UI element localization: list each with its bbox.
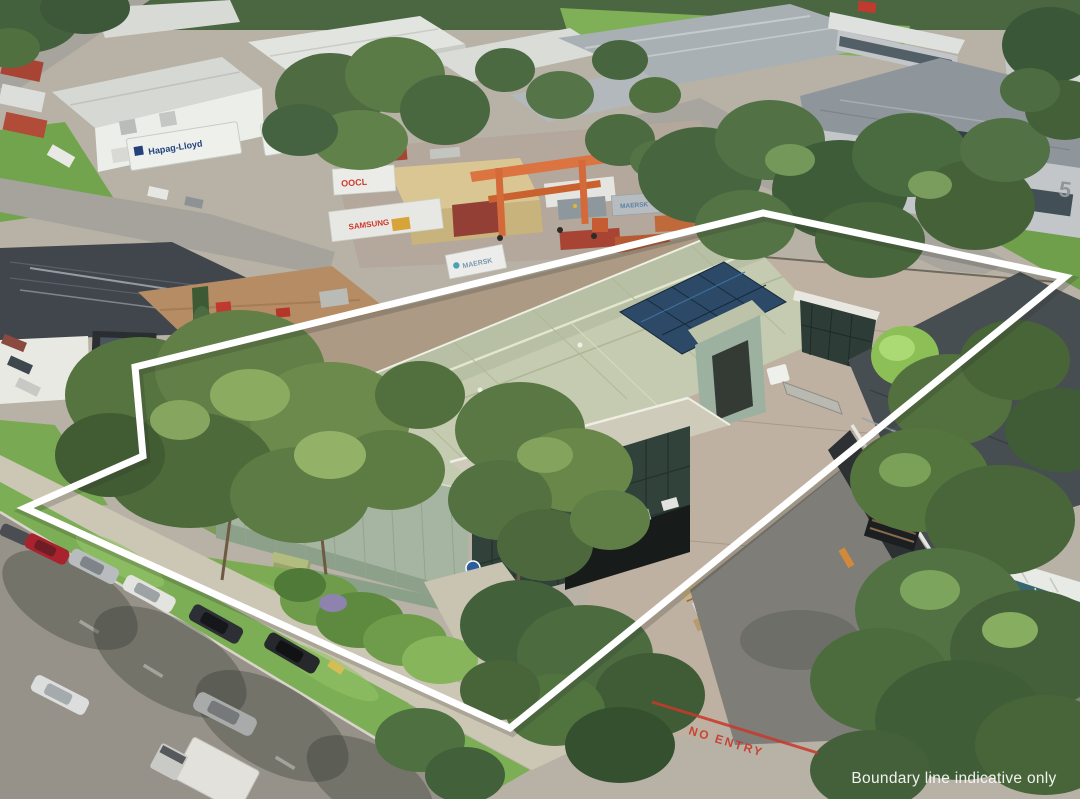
red-roller-door <box>452 200 499 237</box>
flowering-shrub <box>319 594 347 612</box>
hapag-logo-icon <box>134 146 144 156</box>
oocl-container-text: OOCL <box>341 177 368 189</box>
yellow-forklift <box>391 217 410 231</box>
caption-text: Boundary line indicative only <box>851 770 1056 787</box>
aerial-photo: Hapag-Lloyd Hapag-Lloyd OOCL SAMSUNG <box>0 0 1080 799</box>
